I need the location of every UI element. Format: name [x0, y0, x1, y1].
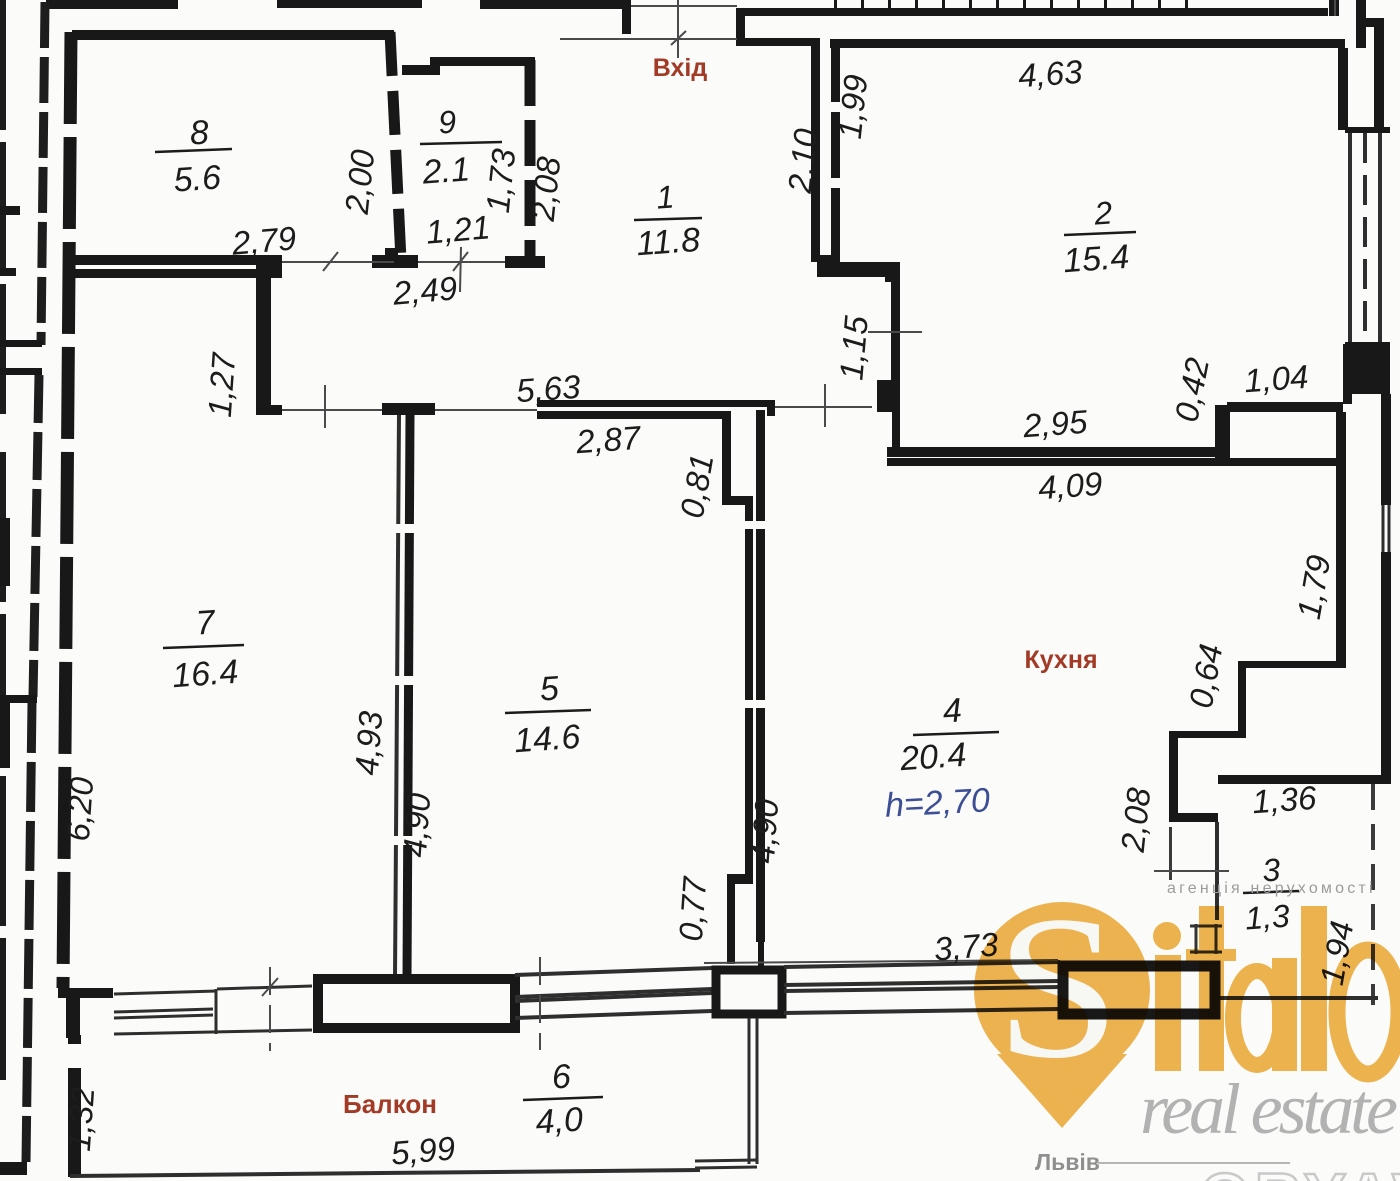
svg-text:Вхід: Вхід — [653, 54, 708, 82]
svg-text:7: 7 — [194, 603, 217, 642]
svg-text:2,49: 2,49 — [390, 269, 458, 312]
svg-text:2,08: 2,08 — [524, 154, 568, 223]
svg-text:5,99: 5,99 — [389, 1129, 456, 1171]
svg-text:1,99: 1,99 — [831, 73, 875, 141]
svg-text:6: 6 — [550, 1057, 572, 1096]
svg-text:4,0: 4,0 — [534, 1100, 584, 1141]
svg-text:S: S — [995, 873, 1120, 1100]
svg-text:2,08: 2,08 — [1114, 785, 1158, 854]
svg-text:1,73: 1,73 — [479, 146, 523, 214]
svg-text:5: 5 — [538, 669, 560, 708]
svg-text:ORYAVA: ORYAVA — [1200, 1160, 1400, 1181]
svg-text:4: 4 — [941, 691, 963, 730]
svg-text:агенція нерухомості: агенція нерухомості — [1167, 880, 1375, 897]
svg-text:Кухня: Кухня — [1024, 646, 1097, 674]
svg-text:1,27: 1,27 — [201, 350, 243, 418]
svg-text:4,90: 4,90 — [744, 797, 785, 864]
svg-text:9: 9 — [437, 103, 457, 140]
svg-text:16.4: 16.4 — [171, 653, 240, 696]
svg-text:1,3: 1,3 — [1244, 898, 1291, 937]
svg-text:4,63: 4,63 — [1017, 53, 1084, 94]
svg-text:4,93: 4,93 — [348, 709, 389, 776]
svg-text:1,32: 1,32 — [60, 1086, 101, 1153]
svg-text:5.6: 5.6 — [172, 158, 222, 199]
svg-text:1,36: 1,36 — [1251, 779, 1318, 820]
svg-text:4,09: 4,09 — [1037, 465, 1104, 506]
svg-text:2: 2 — [1092, 194, 1113, 231]
svg-text:2.1: 2.1 — [420, 150, 471, 191]
svg-text:2,79: 2,79 — [229, 219, 297, 262]
svg-text:2,10: 2,10 — [781, 126, 825, 195]
svg-text:2,95: 2,95 — [1021, 403, 1089, 445]
svg-text:6,20: 6,20 — [59, 775, 100, 842]
svg-text:h=2,70: h=2,70 — [884, 781, 991, 824]
svg-text:4,90: 4,90 — [396, 791, 437, 858]
svg-text:1,15: 1,15 — [832, 314, 875, 382]
svg-text:Львів: Львів — [1035, 1149, 1100, 1175]
svg-text:1,04: 1,04 — [1243, 358, 1310, 399]
svg-text:1: 1 — [655, 178, 675, 215]
svg-text:0,77: 0,77 — [672, 874, 714, 942]
svg-text:2,00: 2,00 — [338, 147, 382, 216]
svg-text:Балкон: Балкон — [343, 1089, 437, 1119]
svg-text:15.4: 15.4 — [1062, 238, 1131, 281]
svg-text:11.8: 11.8 — [635, 221, 701, 263]
svg-text:5,63: 5,63 — [515, 368, 582, 409]
svg-text:20.4: 20.4 — [898, 736, 968, 779]
svg-text:8: 8 — [188, 113, 210, 152]
svg-text:1,21: 1,21 — [424, 208, 491, 250]
svg-text:2,87: 2,87 — [574, 419, 643, 461]
svg-text:real estate: real estate — [1140, 1069, 1398, 1149]
svg-text:14.6: 14.6 — [513, 718, 582, 761]
